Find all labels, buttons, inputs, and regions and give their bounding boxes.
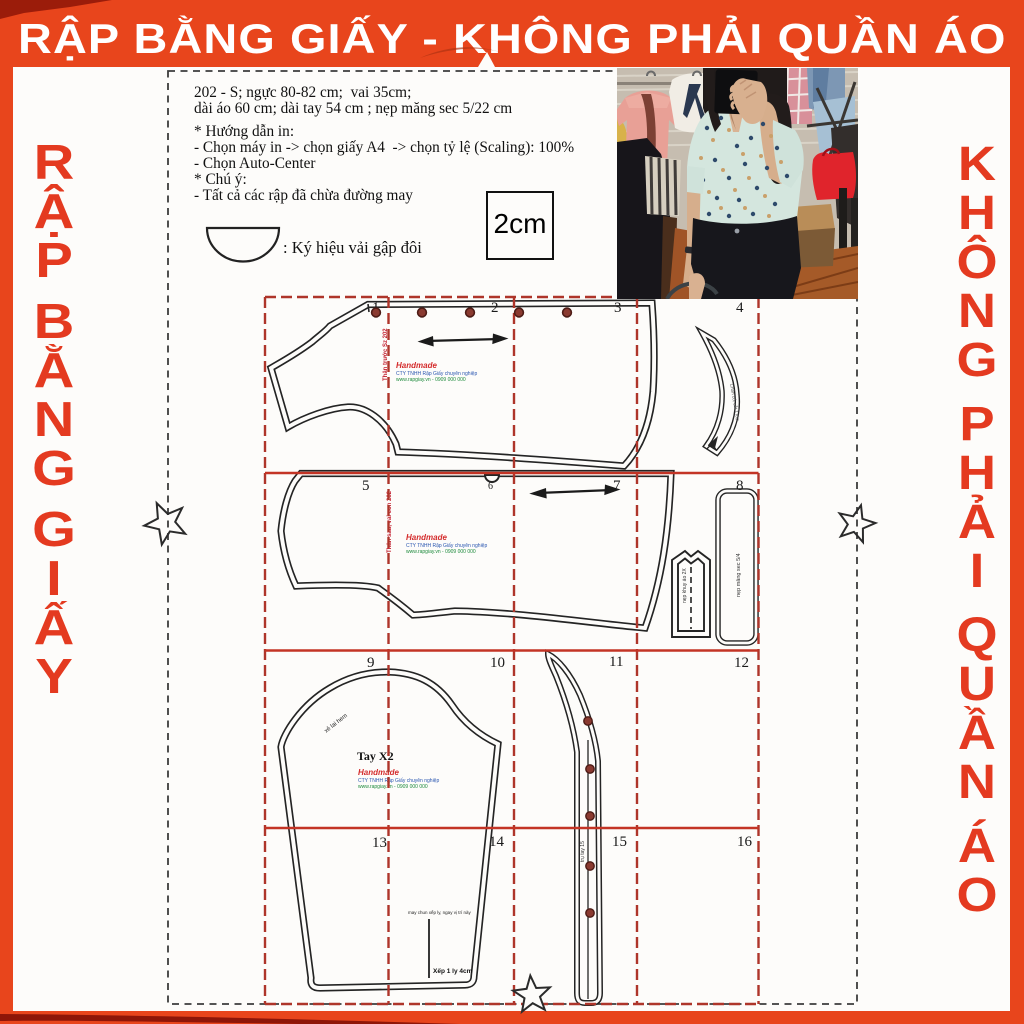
svg-text:may chun xếp ly, ngay vị trí n: may chun xếp ly, ngay vị trí này	[408, 910, 471, 915]
svg-text:9: 9	[367, 655, 375, 671]
svg-text:Handmade: Handmade	[406, 533, 447, 542]
svg-text:www.rapgiay.vn - 0909 000 000: www.rapgiay.vn - 0909 000 000	[358, 784, 428, 790]
svg-text:: Ký hiệu vải gập đôi: : Ký hiệu vải gập đôi	[283, 238, 422, 257]
svg-text:4: 4	[736, 300, 744, 316]
svg-text:2: 2	[491, 300, 499, 316]
svg-text:15: 15	[612, 834, 627, 850]
svg-text:14: 14	[489, 834, 505, 850]
svg-text:7: 7	[613, 478, 621, 494]
svg-text:www.rapgiay.vn - 0909 000 000: www.rapgiay.vn - 0909 000 000	[396, 377, 466, 383]
svg-text:5: 5	[362, 478, 370, 494]
svg-text:Xếp 1 ly 4cm: Xếp 1 ly 4cm	[433, 967, 473, 975]
svg-text:16: 16	[737, 834, 753, 850]
svg-text:10: 10	[490, 655, 505, 671]
svg-text:11: 11	[609, 654, 623, 670]
svg-text:Handmade: Handmade	[358, 768, 399, 777]
svg-text:nẹp khuy áo 2X: nẹp khuy áo 2X	[682, 568, 688, 603]
svg-text:trụ tay 15: trụ tay 15	[580, 841, 586, 862]
svg-text:Handmade: Handmade	[396, 361, 437, 370]
svg-text:3: 3	[614, 300, 622, 316]
svg-text:8: 8	[736, 478, 744, 494]
svg-text:13: 13	[372, 835, 387, 851]
svg-text:www.rapgiay.vn - 0909 000 000: www.rapgiay.vn - 0909 000 000	[406, 549, 476, 555]
svg-text:12: 12	[734, 655, 749, 671]
svg-text:6: 6	[488, 481, 493, 492]
svg-text:nẹp măng sec 5/4: nẹp măng sec 5/4	[736, 553, 742, 597]
